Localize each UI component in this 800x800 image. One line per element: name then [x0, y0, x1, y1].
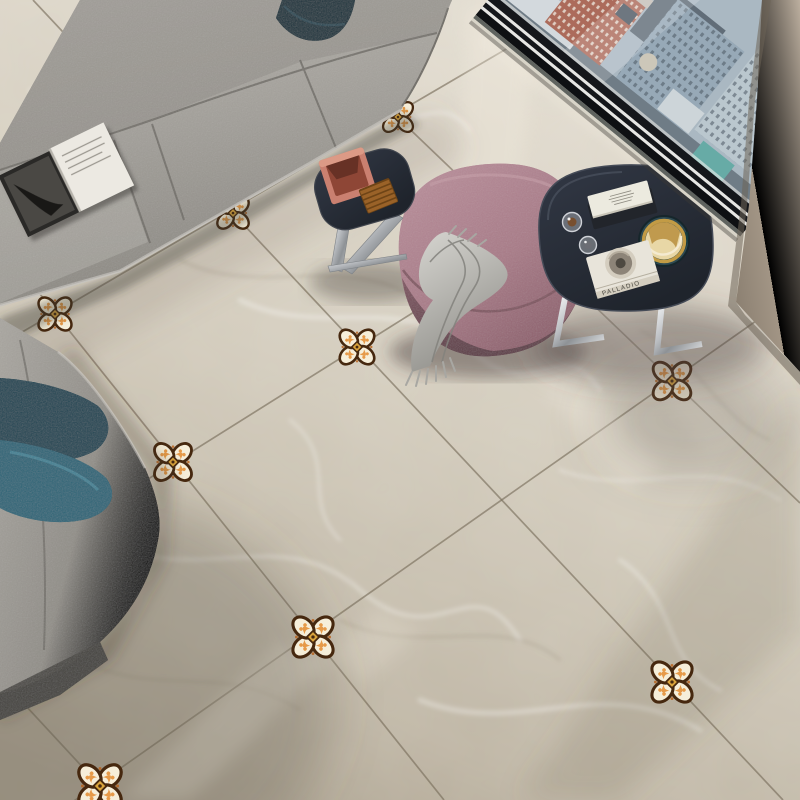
flower-tile-inset: [336, 326, 378, 368]
flower-tile-inset: [648, 658, 697, 707]
living-room-scene: PALLADIO: [0, 0, 800, 800]
flower-tile-inset: [289, 613, 338, 662]
